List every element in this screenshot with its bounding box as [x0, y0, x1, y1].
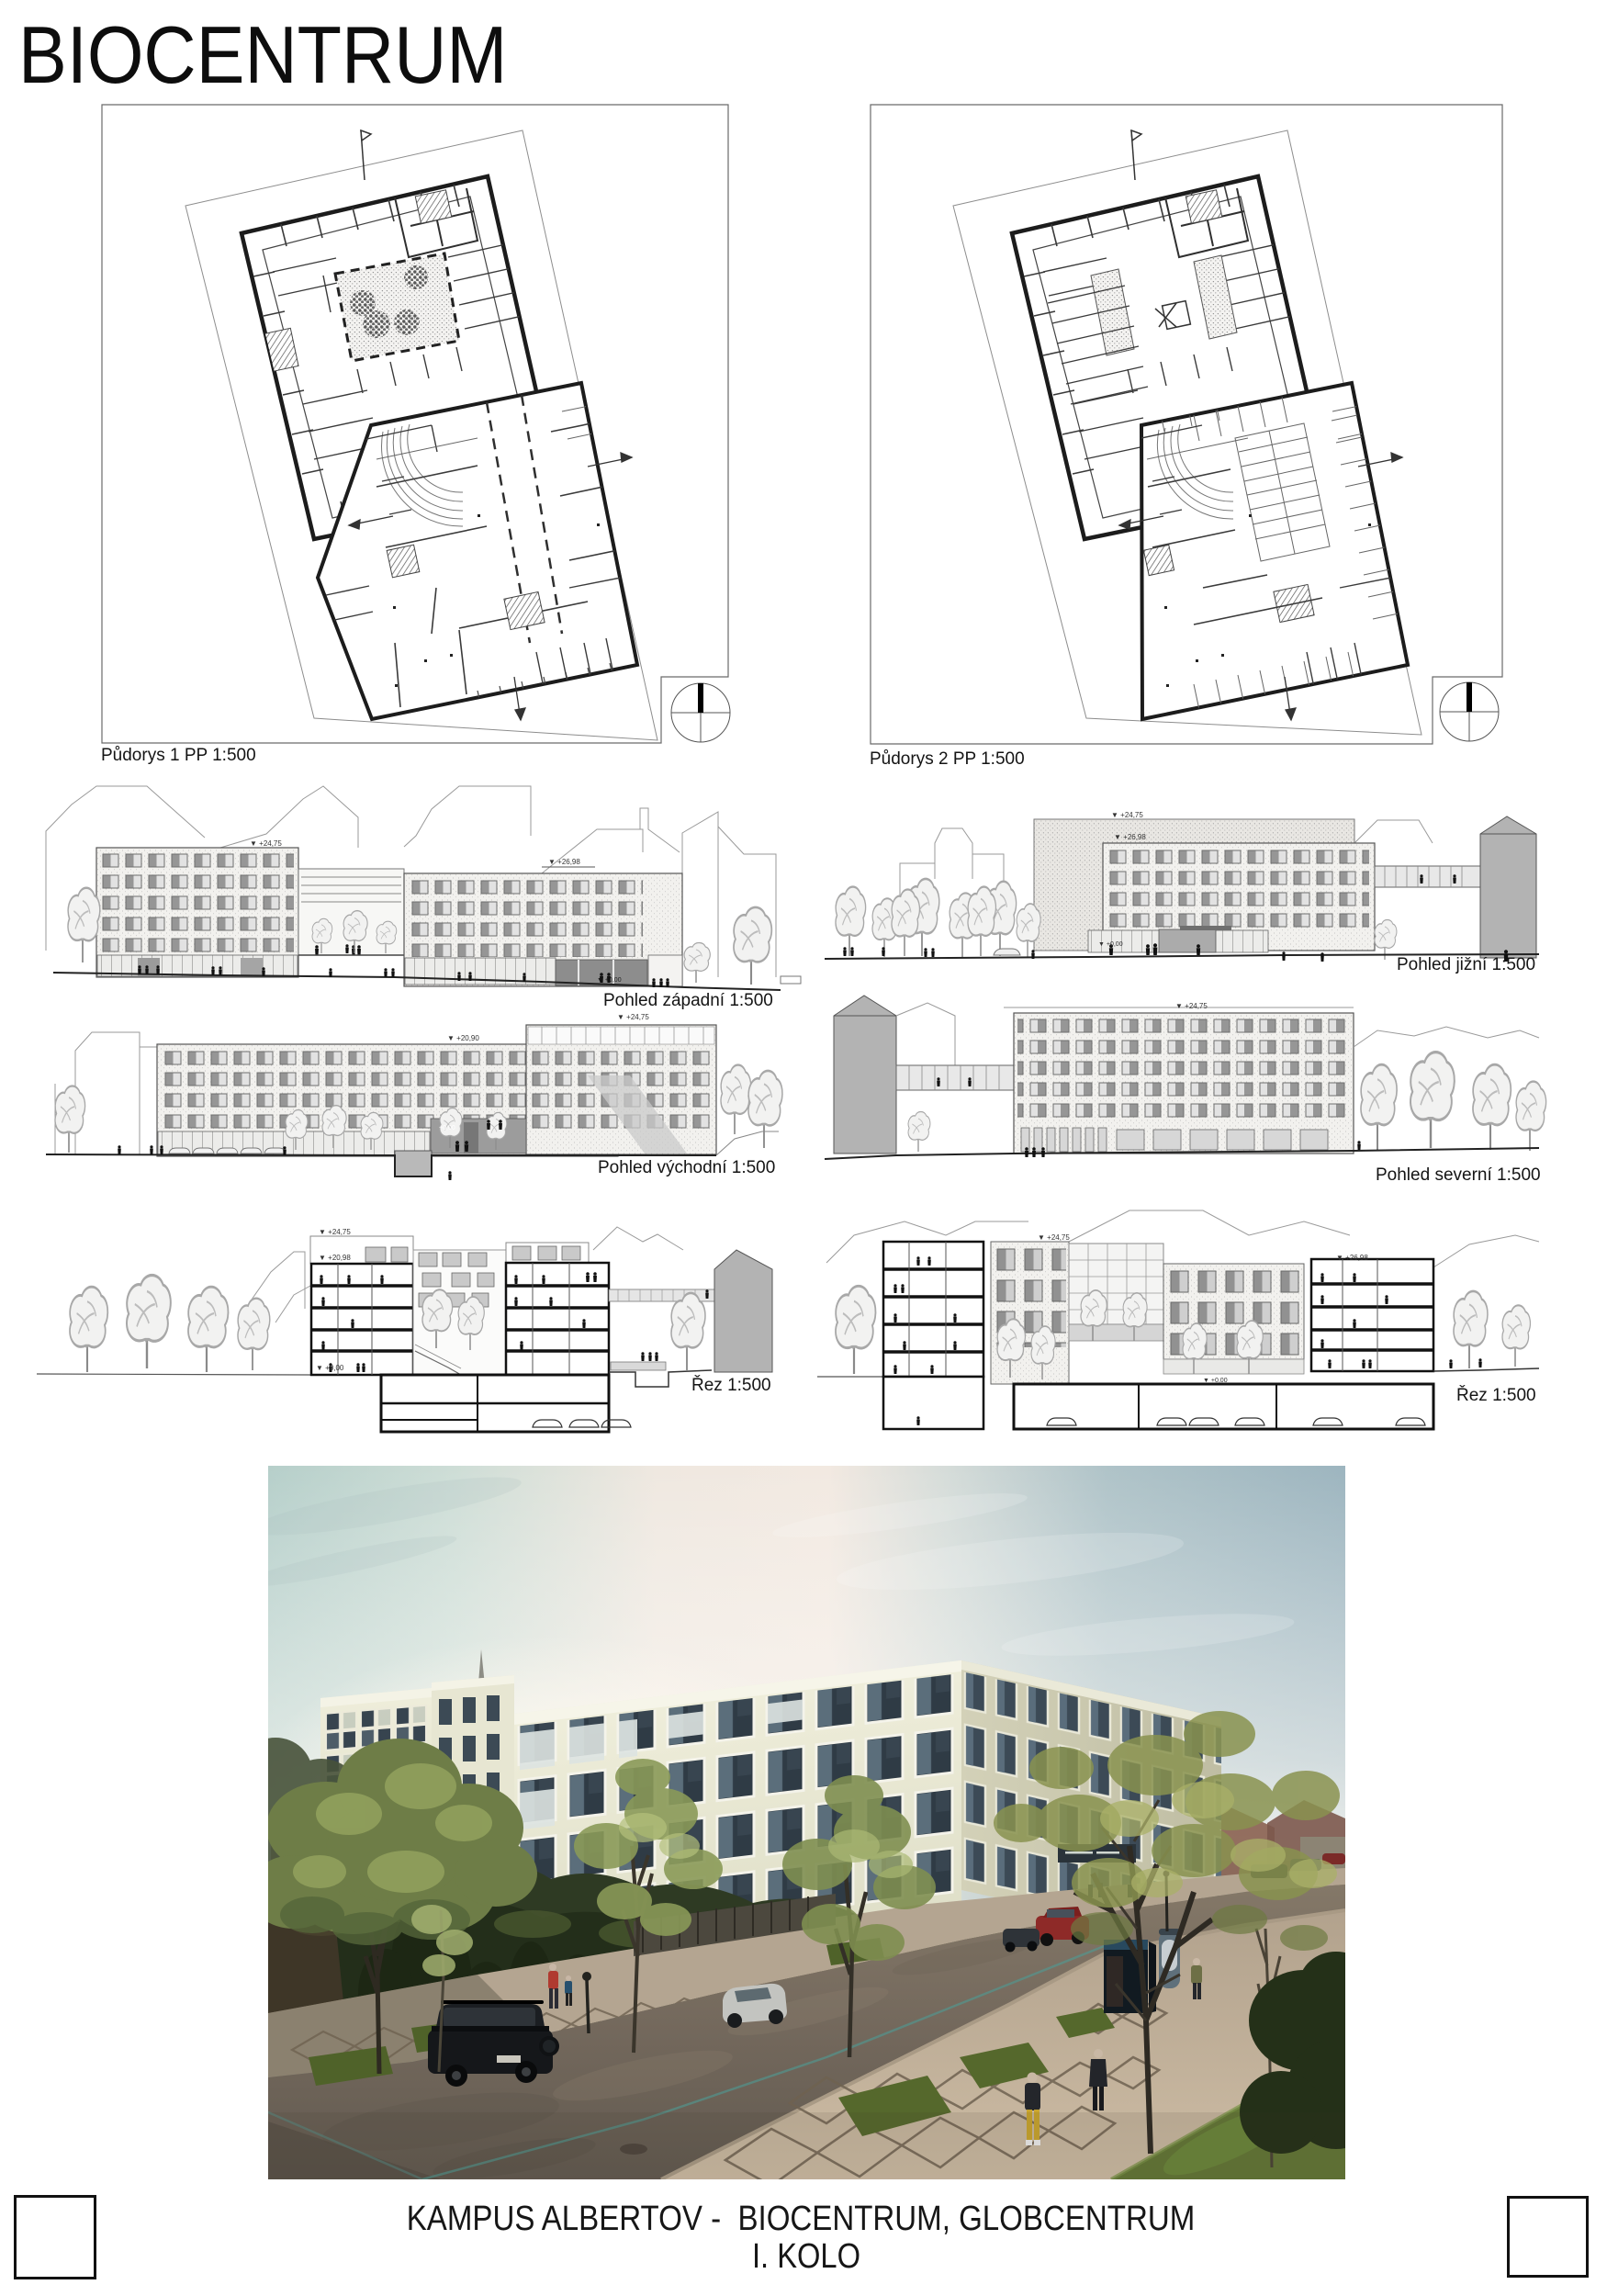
svg-text:▼ +0,00: ▼ +0,00 — [1098, 941, 1123, 948]
svg-text:▼ +24,75: ▼ +24,75 — [617, 1013, 649, 1021]
svg-text:▼ +24,75: ▼ +24,75 — [250, 839, 282, 848]
svg-text:▼ +24,75: ▼ +24,75 — [1111, 811, 1143, 819]
svg-text:▼ +24,75: ▼ +24,75 — [1175, 1002, 1208, 1010]
svg-text:▼ +24,75: ▼ +24,75 — [319, 1228, 351, 1236]
svg-text:▼ +24,75: ▼ +24,75 — [1038, 1233, 1070, 1242]
svg-text:▼ +0,00: ▼ +0,00 — [316, 1364, 344, 1372]
svg-text:▼ +26,98: ▼ +26,98 — [548, 858, 580, 866]
svg-text:▼ +0,00: ▼ +0,00 — [1203, 1378, 1228, 1384]
svg-text:▼ +20,90: ▼ +20,90 — [447, 1034, 479, 1042]
svg-text:+0,00: +0,00 — [439, 1125, 455, 1131]
svg-text:▼ +20,98: ▼ +20,98 — [319, 1254, 351, 1262]
svg-text:▼ +26,98: ▼ +26,98 — [1336, 1254, 1368, 1262]
svg-text:▼ +26,98: ▼ +26,98 — [1114, 833, 1146, 841]
